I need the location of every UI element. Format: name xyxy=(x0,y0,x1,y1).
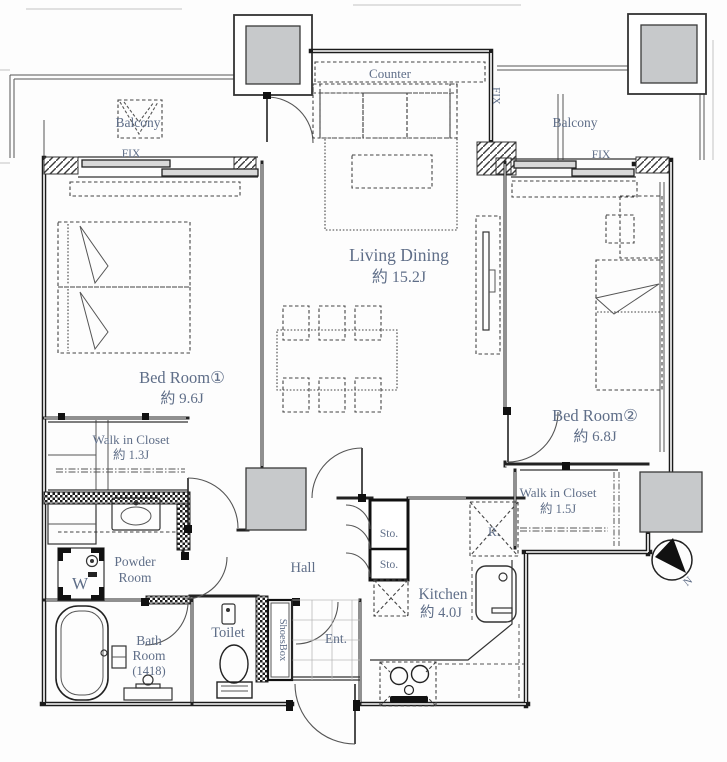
bedroom2-furniture xyxy=(596,196,662,390)
storage2-label: Sto. xyxy=(380,559,398,571)
bath-label-3: (1418) xyxy=(132,664,165,678)
bedroom2-size: 約 6.8J xyxy=(573,428,617,445)
washer-label: W xyxy=(72,574,89,593)
rug xyxy=(325,138,457,230)
kitchen-name: Kitchen xyxy=(418,586,467,603)
bedroom2-name: Bed Room② xyxy=(552,406,638,425)
wic1-name: Walk in Closet xyxy=(93,432,170,447)
powder-room-label-1: Powder xyxy=(114,554,156,569)
tv-board xyxy=(476,216,500,354)
vanity-basin xyxy=(48,498,178,544)
sofa xyxy=(313,84,457,138)
storage-cabinets xyxy=(346,500,408,580)
fix-right-label: FIX xyxy=(592,149,611,161)
living-name: Living Dining xyxy=(349,245,449,265)
wic2-name: Walk in Closet xyxy=(520,485,597,500)
balcony-left-label: Balcony xyxy=(116,115,161,130)
wic2-interior xyxy=(520,528,608,531)
powder-room-label-2: Room xyxy=(118,570,152,585)
gas-stove xyxy=(380,662,436,706)
floor-plan: Balcony FIX Balcony FIX FIX Counter Livi… xyxy=(0,0,727,762)
bath-label-2: Room xyxy=(132,648,166,663)
kitchen-sink xyxy=(476,566,516,622)
bedroom1-size: 約 9.6J xyxy=(160,390,204,407)
pillar-hall xyxy=(246,468,306,530)
living-size: 約 15.2J xyxy=(372,268,426,286)
toilet-fixture xyxy=(217,604,252,698)
fix-left-label: FIX xyxy=(122,148,141,160)
pipe-shaft-right xyxy=(628,14,706,94)
floor-plan-drawing: Balcony FIX Balcony FIX FIX Counter Livi… xyxy=(0,0,727,762)
pipe-shaft-left xyxy=(234,15,312,95)
wic1-size: 約 1.3J xyxy=(113,447,149,462)
pillar-east xyxy=(640,472,702,532)
fix-vertical-label: FIX xyxy=(490,87,502,105)
compass-north-label: N xyxy=(681,575,695,589)
wic2-size: 約 1.5J xyxy=(540,501,576,516)
coffee-table xyxy=(352,155,432,188)
storage1-label: Sto. xyxy=(380,528,398,540)
bath-label-1: Bath xyxy=(136,633,162,648)
balcony-rails xyxy=(10,66,706,160)
floor-storage-hatch xyxy=(374,580,408,616)
window-right-balcony xyxy=(511,159,637,197)
counter-label: Counter xyxy=(369,66,412,81)
compass xyxy=(652,538,692,580)
entrance-label: Ent. xyxy=(325,631,347,646)
beds-bedroom1 xyxy=(58,222,190,353)
bedroom1-name: Bed Room① xyxy=(139,368,225,387)
shoes-box-label: ShoesBox xyxy=(277,619,288,662)
dining-set xyxy=(277,306,397,412)
toilet-label: Toilet xyxy=(211,625,245,641)
balcony-right-label: Balcony xyxy=(553,115,598,130)
refrigerator-label: R. xyxy=(488,524,500,539)
kitchen-size: 約 4.0J xyxy=(420,604,462,621)
window-left-balcony xyxy=(70,157,258,196)
doors xyxy=(141,92,558,744)
hall-label: Hall xyxy=(291,560,316,576)
